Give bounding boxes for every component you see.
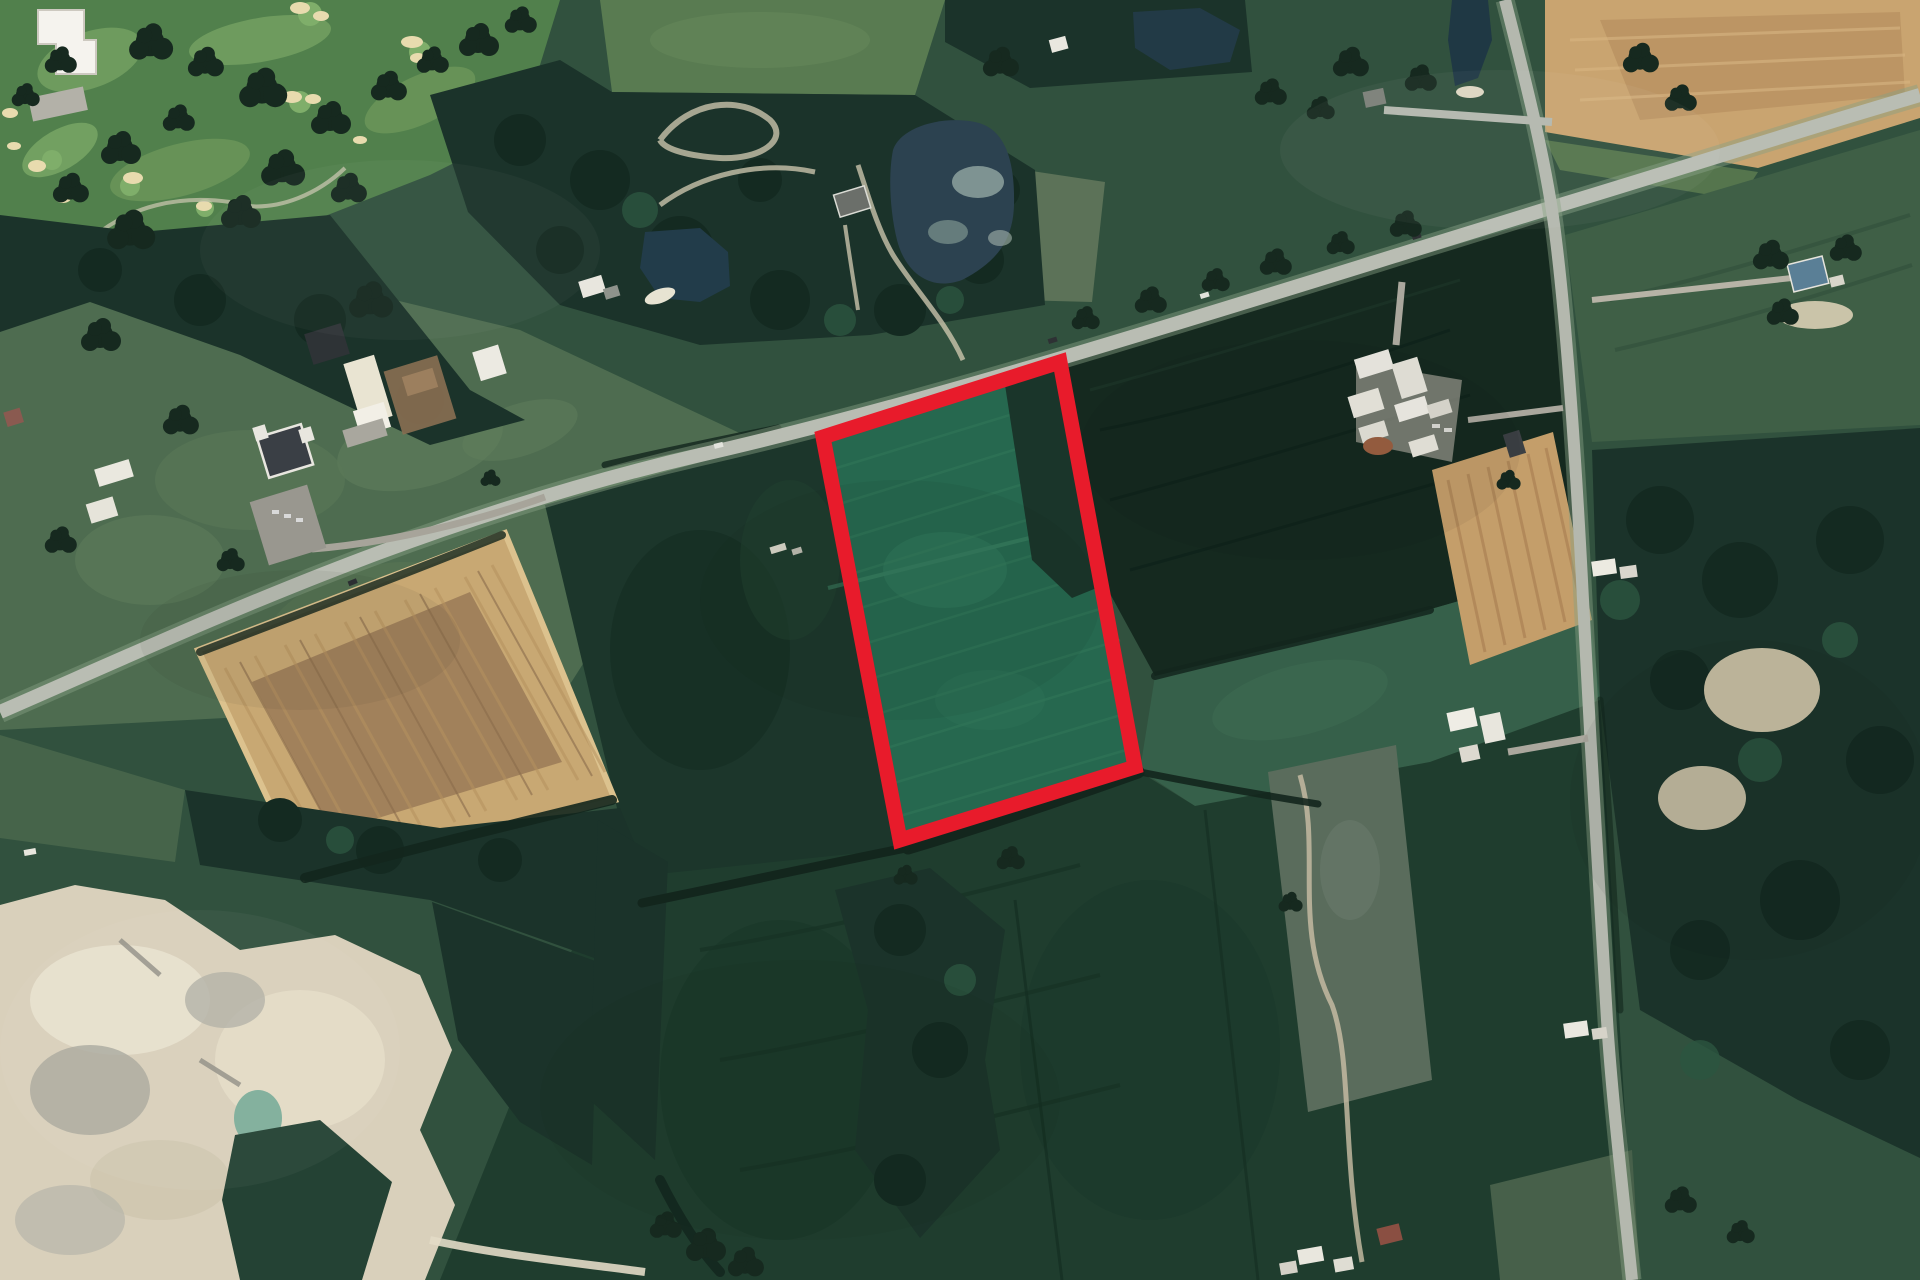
satellite-map [0, 0, 1920, 1280]
meadow-field [600, 0, 945, 95]
satellite-map-screenshot [0, 0, 1920, 1280]
